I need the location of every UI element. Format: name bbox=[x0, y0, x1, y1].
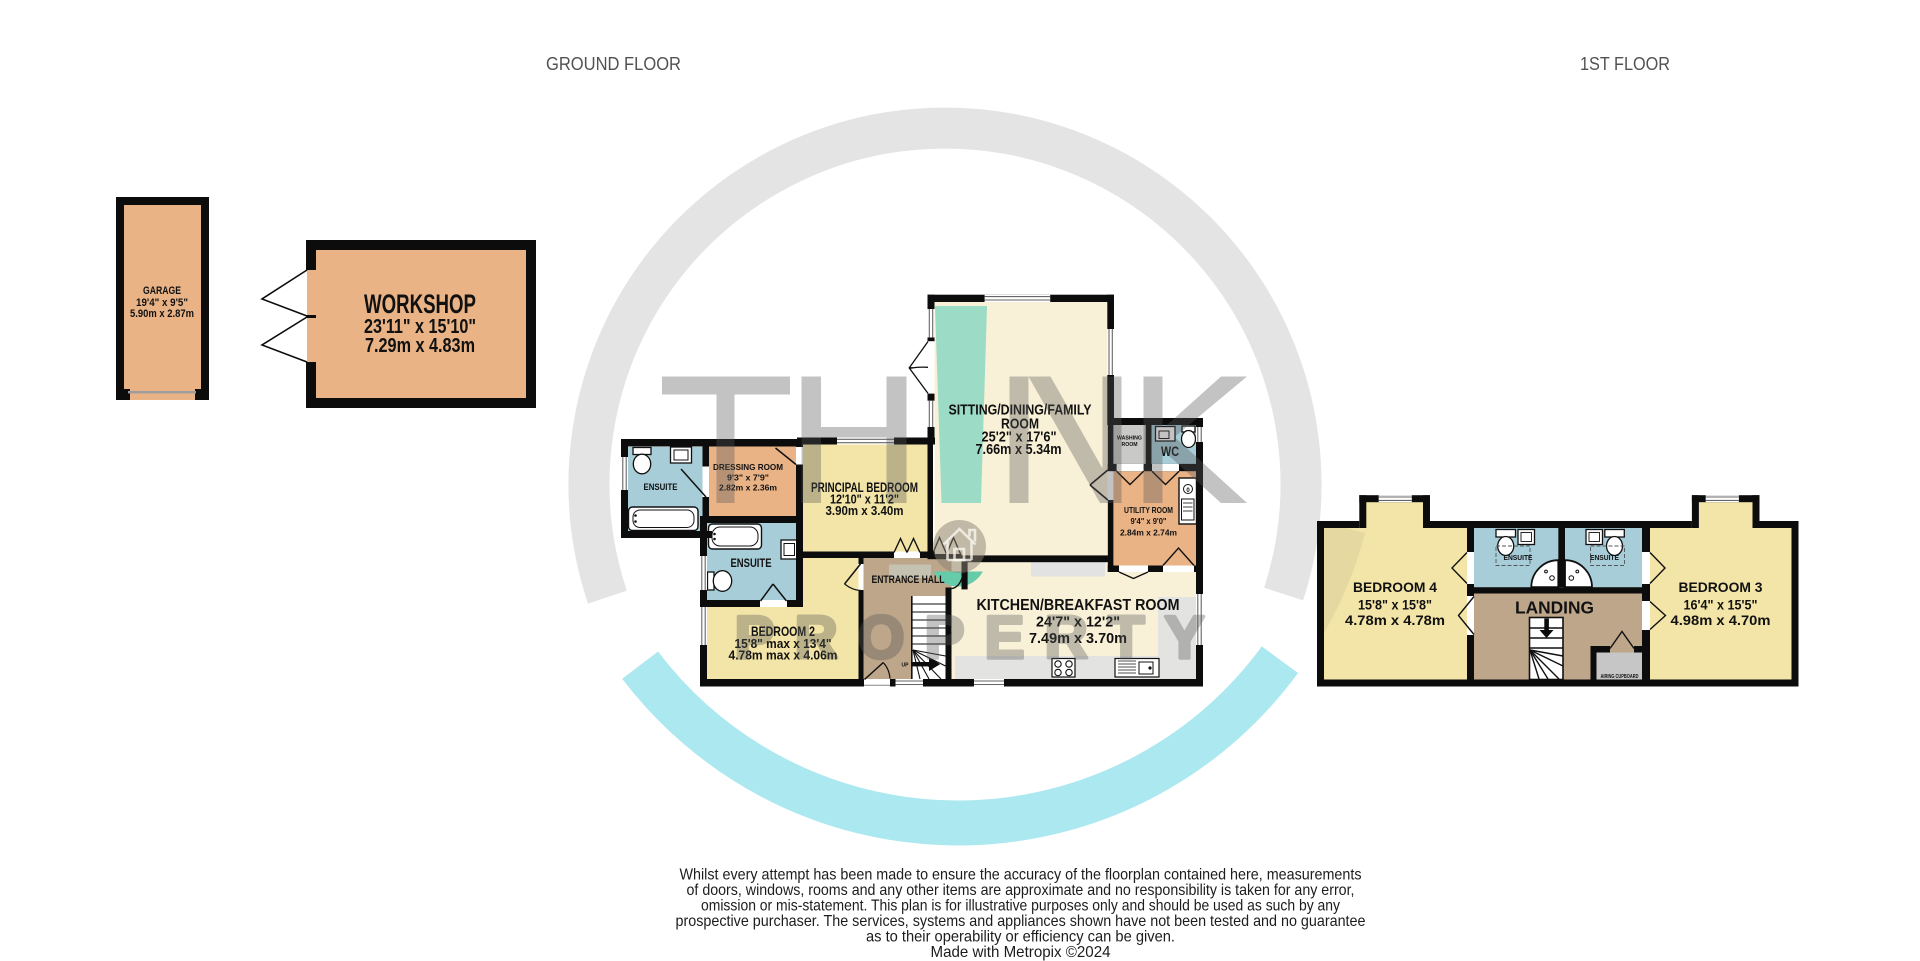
svg-text:Whilst every attempt has been: Whilst every attempt has been made to en… bbox=[680, 867, 1362, 884]
svg-text:3.90m x 3.40m: 3.90m x 3.40m bbox=[826, 504, 904, 518]
svg-text:UTILITY ROOM: UTILITY ROOM bbox=[1124, 505, 1173, 515]
svg-text:15'8" x 15'8": 15'8" x 15'8" bbox=[1358, 597, 1432, 613]
svg-text:BEDROOM 3: BEDROOM 3 bbox=[1679, 579, 1763, 595]
svg-text:5.90m x 2.87m: 5.90m x 2.87m bbox=[130, 308, 194, 320]
svg-text:ENSUITE: ENSUITE bbox=[1590, 553, 1619, 562]
svg-text:1ST FLOOR: 1ST FLOOR bbox=[1580, 53, 1670, 74]
svg-text:4.78m x 4.78m: 4.78m x 4.78m bbox=[1345, 612, 1445, 628]
svg-text:7.29m x 4.83m: 7.29m x 4.83m bbox=[365, 335, 475, 357]
svg-text:AIRING CUPBOARD: AIRING CUPBOARD bbox=[1601, 674, 1639, 680]
svg-text:ENSUITE: ENSUITE bbox=[644, 482, 678, 492]
svg-text:Made with Metropix ©2024: Made with Metropix ©2024 bbox=[931, 944, 1111, 961]
svg-text:ENSUITE: ENSUITE bbox=[731, 558, 772, 570]
svg-text:prospective purchaser. The ser: prospective purchaser. The services, sys… bbox=[676, 913, 1366, 930]
svg-text:4.98m x 4.70m: 4.98m x 4.70m bbox=[1671, 612, 1771, 628]
svg-text:ROOM: ROOM bbox=[1122, 442, 1138, 448]
svg-text:LANDING: LANDING bbox=[1515, 598, 1594, 618]
svg-text:16'4" x 15'5": 16'4" x 15'5" bbox=[1684, 597, 1758, 613]
svg-text:ENSUITE: ENSUITE bbox=[1504, 553, 1533, 562]
svg-text:GARAGE: GARAGE bbox=[143, 285, 181, 297]
svg-text:ENTRANCE HALL: ENTRANCE HALL bbox=[872, 574, 945, 586]
svg-text:GROUND FLOOR: GROUND FLOOR bbox=[546, 53, 681, 74]
svg-text:of doors, windows, rooms and a: of doors, windows, rooms and any other i… bbox=[687, 882, 1355, 899]
svg-text:2.84m x 2.74m: 2.84m x 2.74m bbox=[1120, 529, 1177, 538]
svg-text:WORKSHOP: WORKSHOP bbox=[364, 289, 476, 319]
svg-text:9'4" x 9'0": 9'4" x 9'0" bbox=[1131, 517, 1167, 526]
svg-text:omission or mis-statement. Thi: omission or mis-statement. This plan is … bbox=[701, 898, 1340, 915]
svg-text:as to their operability or eff: as to their operability or efficiency ca… bbox=[866, 929, 1175, 946]
svg-text:BEDROOM 4: BEDROOM 4 bbox=[1353, 579, 1437, 595]
